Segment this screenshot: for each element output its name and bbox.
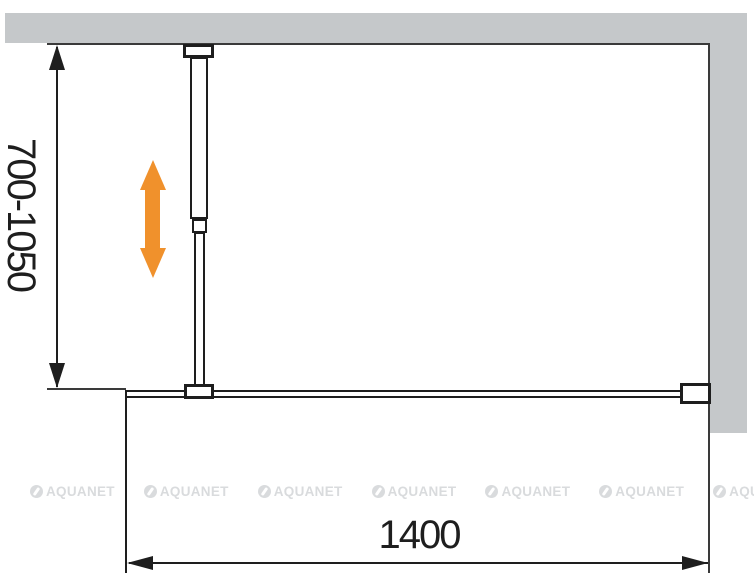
watermark-text: AQUANET	[501, 484, 570, 499]
watermark-text: AQUANET	[388, 484, 457, 499]
extension-line-bottom-left	[47, 388, 126, 390]
watermark-item: AQUANET	[713, 484, 754, 499]
watermark-text: AQUANET	[160, 484, 229, 499]
aquanet-logo-icon	[713, 485, 726, 498]
watermark-item: AQUANET	[599, 484, 684, 499]
aquanet-logo-icon	[258, 485, 271, 498]
watermark-item: AQUANET	[372, 484, 457, 499]
height-dimension-label: 700-1050	[1, 138, 41, 291]
arrow-shaft	[145, 190, 160, 248]
arrow-up-head	[140, 160, 166, 190]
wall-top	[5, 13, 747, 43]
support-bar-adjust-collar	[192, 219, 207, 233]
watermark-text: AQUANET	[729, 484, 754, 499]
width-dimension-arrow-right-icon	[682, 556, 708, 570]
aquanet-logo-icon	[30, 485, 43, 498]
watermark-item: AQUANET	[144, 484, 229, 499]
support-bar-outer-tube	[190, 57, 208, 219]
wall-right	[708, 13, 747, 433]
aquanet-logo-icon	[144, 485, 157, 498]
support-bar-ceiling-mount	[183, 44, 214, 58]
aquanet-logo-icon	[372, 485, 385, 498]
watermark-text: AQUANET	[615, 484, 684, 499]
width-dimension-line	[129, 562, 708, 564]
watermark-text: AQUANET	[46, 484, 115, 499]
watermark-item: AQUANET	[258, 484, 343, 499]
watermark-row: AQUANET AQUANET AQUANET AQUANET AQUANET …	[30, 484, 754, 499]
watermark-text: AQUANET	[274, 484, 343, 499]
aquanet-logo-icon	[485, 485, 498, 498]
watermark-item: AQUANET	[485, 484, 570, 499]
shower-screen-diagram: 700-1050 1400 AQUANET AQUANET AQUANET AQ…	[0, 0, 754, 580]
width-dimension-arrow-left-icon	[127, 556, 153, 570]
arrow-down-head	[140, 248, 166, 278]
height-dimension-line	[56, 47, 58, 387]
adjustable-height-arrow-icon	[139, 160, 166, 278]
wall-bottom-edge-line	[47, 43, 709, 45]
tray-left-edge-line	[125, 390, 127, 573]
height-dimension-arrow-down-icon	[49, 363, 65, 388]
aquanet-logo-icon	[599, 485, 612, 498]
support-bar-glass-clamp	[184, 384, 214, 399]
width-dimension-label: 1400	[319, 515, 519, 555]
support-bar-inner-tube	[194, 232, 205, 386]
glass-wall-bracket	[680, 383, 711, 404]
watermark-item: AQUANET	[30, 484, 115, 499]
height-dimension-arrow-up-icon	[49, 45, 65, 70]
